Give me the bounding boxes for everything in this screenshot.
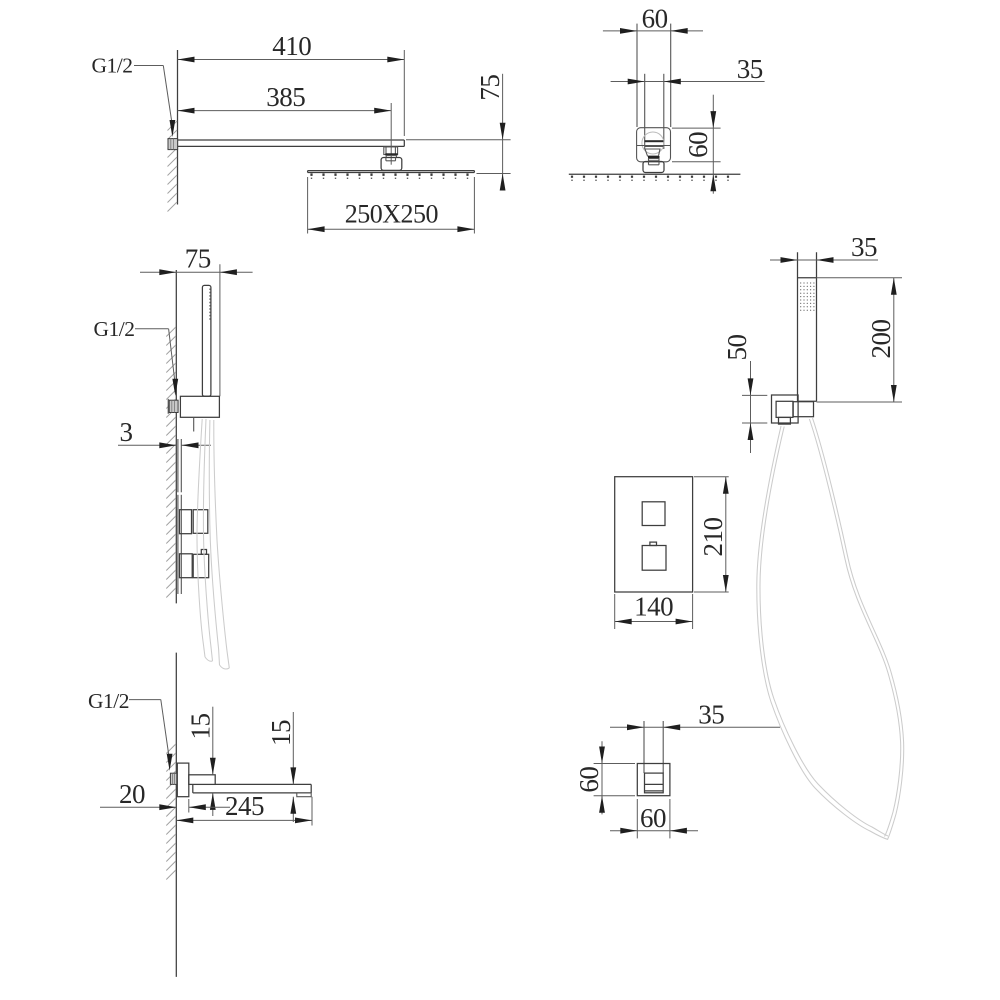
svg-text:G1/2: G1/2 xyxy=(94,317,135,341)
svg-text:60: 60 xyxy=(642,3,668,33)
svg-text:G1/2: G1/2 xyxy=(88,689,129,713)
svg-text:75: 75 xyxy=(475,75,505,101)
svg-text:3: 3 xyxy=(120,417,133,447)
svg-text:50: 50 xyxy=(722,335,752,361)
svg-text:35: 35 xyxy=(851,232,877,262)
svg-text:410: 410 xyxy=(272,31,311,61)
svg-text:G1/2: G1/2 xyxy=(92,54,133,78)
svg-text:200: 200 xyxy=(866,320,896,359)
svg-text:140: 140 xyxy=(634,592,673,622)
svg-text:35: 35 xyxy=(698,700,724,730)
svg-text:75: 75 xyxy=(185,244,211,274)
svg-text:60: 60 xyxy=(574,767,604,793)
svg-text:245: 245 xyxy=(225,791,264,821)
svg-text:15: 15 xyxy=(266,720,296,746)
svg-text:15: 15 xyxy=(186,714,216,740)
svg-text:385: 385 xyxy=(266,82,305,112)
svg-text:60: 60 xyxy=(640,803,666,833)
svg-text:210: 210 xyxy=(698,518,728,557)
svg-text:35: 35 xyxy=(737,54,763,84)
svg-text:250X250: 250X250 xyxy=(345,200,439,229)
svg-text:20: 20 xyxy=(119,779,145,809)
svg-text:60: 60 xyxy=(683,132,713,158)
